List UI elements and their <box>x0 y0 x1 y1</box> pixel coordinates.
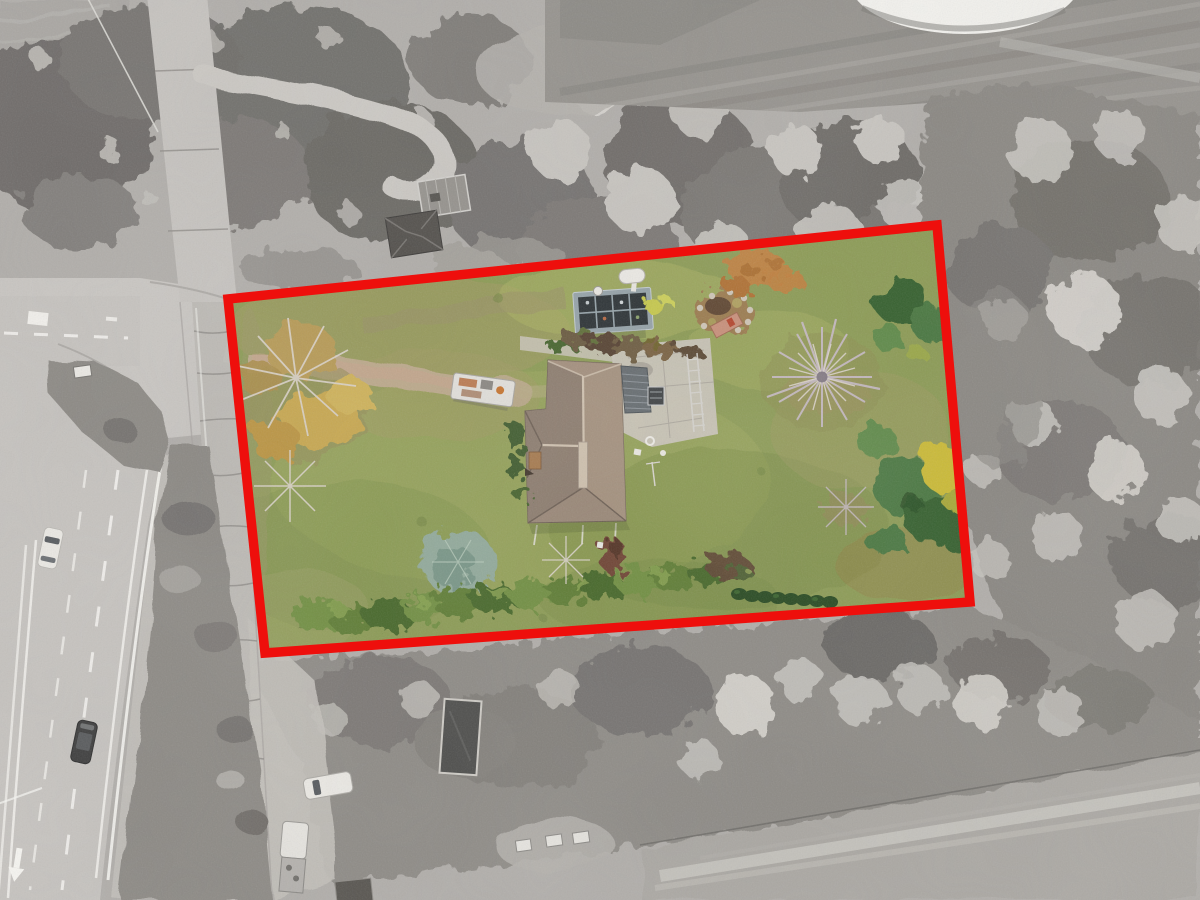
film-grain-overlay <box>0 0 1200 900</box>
aerial-photo-canvas: Aerial drone photograph of a rural lot o… <box>0 0 1200 900</box>
photo-stage: Aerial drone photograph of a rural lot o… <box>0 0 1200 900</box>
